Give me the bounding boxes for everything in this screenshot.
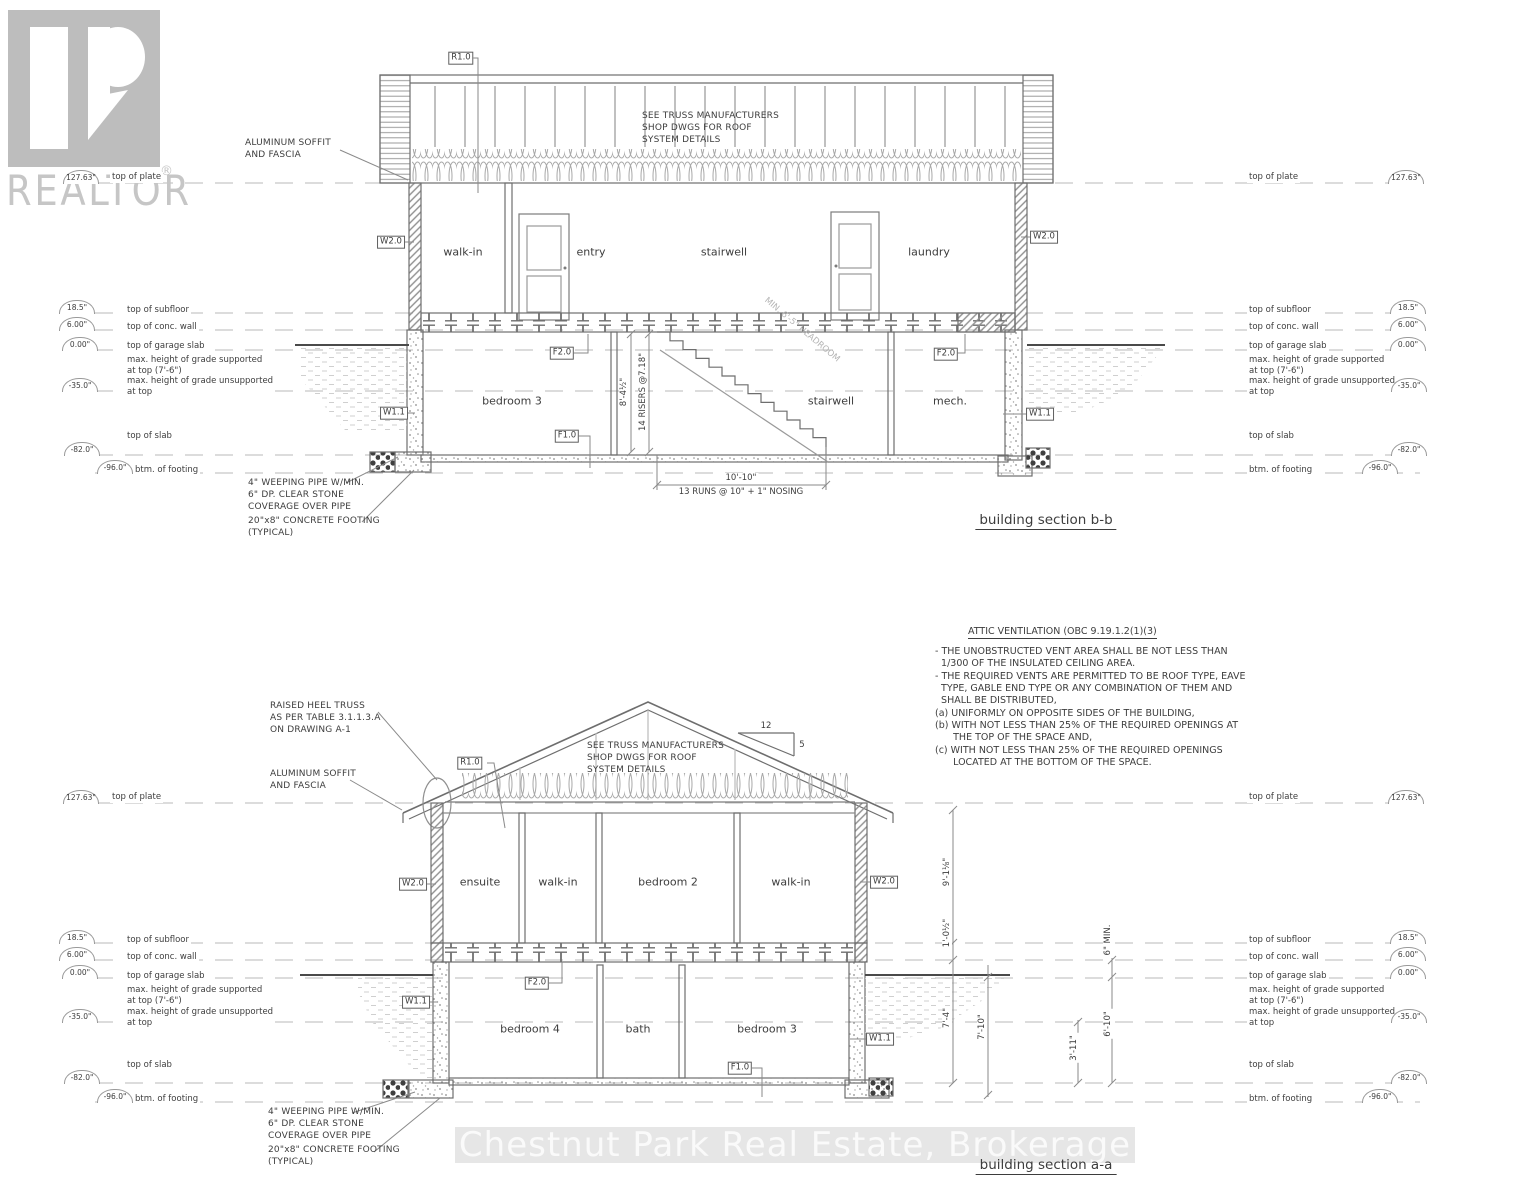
tag-w2-right-upper: W2.0 (1030, 231, 1058, 244)
tag-f2-lower: F2.0 (525, 977, 549, 990)
lvl-garage-l-b: top of garage slab (125, 341, 207, 352)
stair-run-dim: 10'-10" (724, 473, 759, 483)
stair-run-note: 13 RUNS @ 10" + 1" NOSING (677, 487, 805, 497)
soffit-note-upper: ALUMINUM SOFFIT AND FASCIA (245, 137, 331, 161)
room-bedroom4-a: bedroom 4 (500, 1023, 560, 1036)
lvl-plate-l-a: top of plate (110, 792, 163, 803)
lvl-concwall-r-a: top of conc. wall (1247, 952, 1321, 963)
slope-rise: 12 (759, 721, 774, 731)
lvl-subfloor-l-b: top of subfloor (125, 305, 191, 316)
dim-slab-footing: 7'-10" (977, 1012, 987, 1042)
tag-f2-left-upper: F2.0 (550, 347, 574, 360)
lvl-concwall-l-b: top of conc. wall (125, 322, 199, 333)
lvl-gradeunsup-l-a: max. height of grade unsupported at top (125, 1007, 275, 1029)
elev-plate-r-a: 127.63" (1388, 790, 1424, 804)
lvl-concwall-r-b: top of conc. wall (1247, 322, 1321, 333)
soffit-note-lower: ALUMINUM SOFFIT AND FASCIA (270, 768, 356, 792)
attic-vent-body: - THE UNOBSTRUCTED VENT AREA SHALL BE NO… (935, 646, 1246, 769)
lvl-subfloor-r-a: top of subfloor (1247, 935, 1313, 946)
lvl-garage-r-b: top of garage slab (1247, 341, 1329, 352)
elev-plate-l-a: 127.63" (63, 790, 99, 804)
lvl-gradesup-r-b: max. height of grade supported at top (7… (1247, 355, 1386, 377)
room-laundry-b: laundry (908, 246, 950, 259)
section-b-dims (340, 150, 1032, 522)
dim-wall-slab: 7'-4" (942, 1006, 952, 1030)
tag-f1-upper: F1.0 (555, 430, 579, 443)
stair-risers-dim: 14 RISERS @7.18" (638, 351, 648, 433)
tag-f2-right-upper: F2.0 (934, 348, 958, 361)
lvl-slab-r-b: top of slab (1247, 431, 1296, 442)
weeping-note-lower: 4" WEEPING PIPE W/MIN. 6" DP. CLEAR STON… (268, 1106, 384, 1142)
lvl-gradesup-r-a: max. height of grade supported at top (7… (1247, 985, 1386, 1007)
dim-subfloor-wall: 1'-0½" (942, 917, 952, 949)
tag-f1-lower: F1.0 (728, 1062, 752, 1075)
dim-grade-slab: 3'-11" (1069, 1033, 1079, 1063)
lvl-subfloor-l-a: top of subfloor (125, 935, 191, 946)
tag-w2-left-upper: W2.0 (377, 236, 405, 249)
lvl-garage-l-a: top of garage slab (125, 971, 207, 982)
section-b-title: building section b-b (975, 512, 1116, 530)
lvl-gradeunsup-l-b: max. height of grade unsupported at top (125, 376, 275, 398)
lvl-plate-r-b: top of plate (1247, 172, 1300, 183)
tag-w2-left-lower: W2.0 (399, 878, 427, 891)
section-a-title: building section a-a (976, 1157, 1117, 1175)
room-ensuite-a: ensuite (460, 876, 501, 889)
attic-vent-title: ATTIC VENTILATION (OBC 9.19.1.2(1)(3) (968, 626, 1157, 639)
dim-conc-min: 6" MIN. (1103, 923, 1113, 958)
tag-w2-right-lower: W2.0 (870, 876, 898, 889)
truss-note-lower: SEE TRUSS MANUFACTURERS SHOP DWGS FOR RO… (587, 740, 724, 776)
tag-r1-upper: R1.0 (448, 52, 473, 65)
footing-note-lower: 20"x8" CONCRETE FOOTING (TYPICAL) (268, 1144, 400, 1168)
lvl-plate-r-a: top of plate (1247, 792, 1300, 803)
room-walk-in-b: walk-in (443, 246, 482, 259)
lvl-footing-r-a: btm. of footing (1247, 1094, 1314, 1105)
room-bath-a: bath (625, 1023, 650, 1036)
room-stairwell-b-bsmt: stairwell (808, 395, 854, 408)
room-entry-b: entry (576, 246, 605, 259)
room-walkin1-a: walk-in (538, 876, 577, 889)
lvl-footing-r-b: btm. of footing (1247, 465, 1314, 476)
page: REALTOR ® R1.0 SEE TRUSS MANUFACTURERS S… (0, 0, 1523, 1200)
raised-heel-note: RAISED HEEL TRUSS AS PER TABLE 3.1.1.3.A… (270, 700, 381, 736)
lvl-garage-r-a: top of garage slab (1247, 971, 1329, 982)
weeping-note-upper: 4" WEEPING PIPE W/MIN. 6" DP. CLEAR STON… (248, 477, 364, 513)
elev-plate-r-b: 127.63" (1388, 170, 1424, 184)
stair-height-dim: 8'-4½" (619, 376, 629, 408)
lvl-gradeunsup-r-b: max. height of grade unsupported at top (1247, 376, 1397, 398)
lvl-slab-l-a: top of slab (125, 1060, 174, 1071)
tag-r1-lower: R1.0 (457, 757, 482, 770)
lvl-plate-l-b: top of plate (110, 172, 163, 183)
room-bedroom3-a: bedroom 3 (737, 1023, 797, 1036)
room-bedroom2-a: bedroom 2 (638, 876, 698, 889)
room-walkin2-a: walk-in (771, 876, 810, 889)
room-stairwell-b-main: stairwell (701, 246, 747, 259)
lvl-footing-l-b: btm. of footing (133, 465, 200, 476)
tag-w1-left-upper: W1.1 (380, 407, 408, 420)
realtor-logo (6, 8, 166, 170)
elev-plate-l-b: 127.63" (63, 170, 99, 184)
tag-w1-right-upper: W1.1 (1026, 408, 1054, 421)
lvl-gradeunsup-r-a: max. height of grade unsupported at top (1247, 1007, 1397, 1029)
lvl-slab-l-b: top of slab (125, 431, 174, 442)
room-mech-b: mech. (933, 395, 967, 408)
lvl-subfloor-r-b: top of subfloor (1247, 305, 1313, 316)
dim-plate-subfloor: 9'-1⅛" (942, 856, 952, 888)
lvl-footing-l-a: btm. of footing (133, 1094, 200, 1105)
dim-garage-slab: 6'-10" (1103, 1009, 1113, 1039)
tag-w1-left-lower: W1.1 (402, 996, 430, 1009)
slope-run: 5 (797, 740, 806, 750)
lvl-gradesup-l-a: max. height of grade supported at top (7… (125, 985, 264, 1007)
room-bedroom3-b: bedroom 3 (482, 395, 542, 408)
lvl-slab-r-a: top of slab (1247, 1060, 1296, 1071)
footing-note-upper: 20"x8" CONCRETE FOOTING (TYPICAL) (248, 515, 380, 539)
truss-note-upper: SEE TRUSS MANUFACTURERS SHOP DWGS FOR RO… (642, 110, 779, 146)
tag-w1-right-lower: W1.1 (866, 1033, 894, 1046)
lvl-gradesup-l-b: max. height of grade supported at top (7… (125, 355, 264, 377)
lvl-concwall-l-a: top of conc. wall (125, 952, 199, 963)
